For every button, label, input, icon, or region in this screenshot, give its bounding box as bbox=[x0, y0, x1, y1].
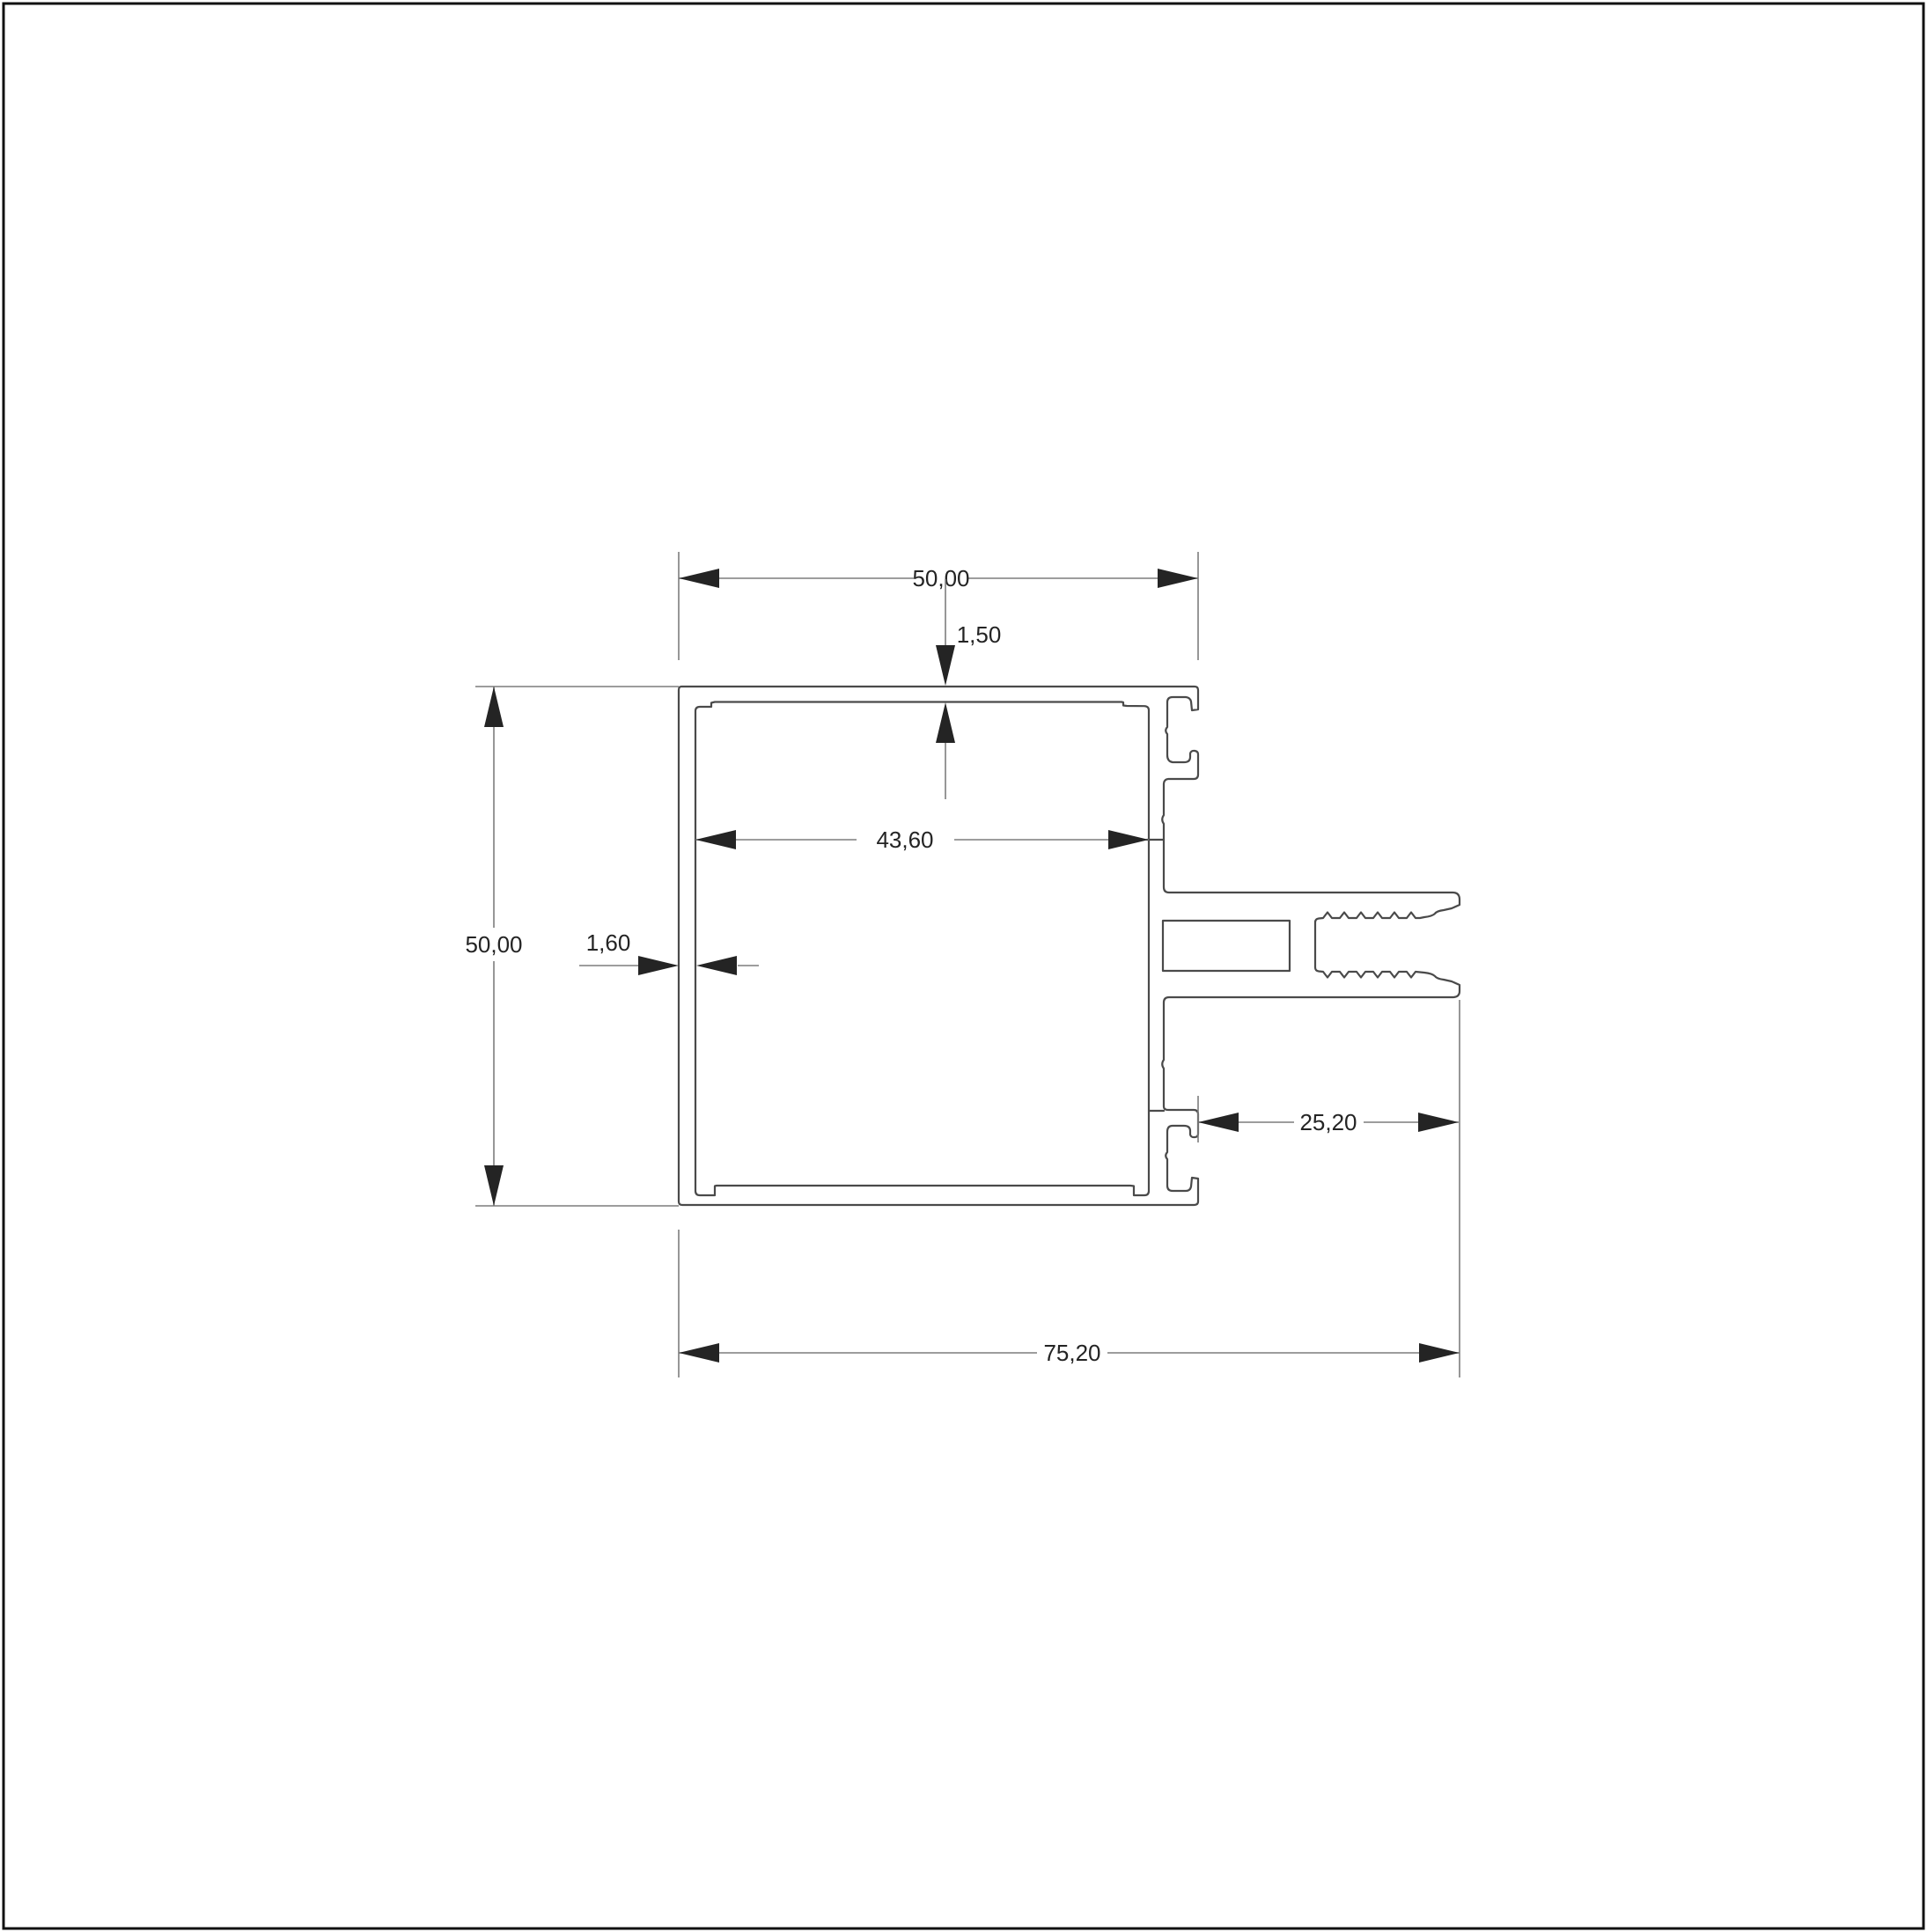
dimension-label-overall-width-bottom: 75,20 bbox=[1043, 1340, 1100, 1366]
drawing-canvas: 50,001,5043,6050,001,6025,2075,20 bbox=[0, 0, 1927, 1932]
dimension-label-side-wall-thickness: 1,60 bbox=[586, 929, 631, 956]
dimension-label-overall-height-left: 50,00 bbox=[465, 931, 522, 958]
dimension-label-overall-width-top: 50,00 bbox=[912, 565, 969, 591]
page-background bbox=[0, 0, 1927, 1932]
technical-drawing-svg: 50,001,5043,6050,001,6025,2075,20 bbox=[0, 0, 1927, 1932]
dimension-label-top-wall-thickness: 1,50 bbox=[957, 621, 1002, 648]
dimension-label-flange-depth: 25,20 bbox=[1299, 1109, 1357, 1135]
dimension-label-inner-cavity-width: 43,60 bbox=[876, 826, 933, 853]
